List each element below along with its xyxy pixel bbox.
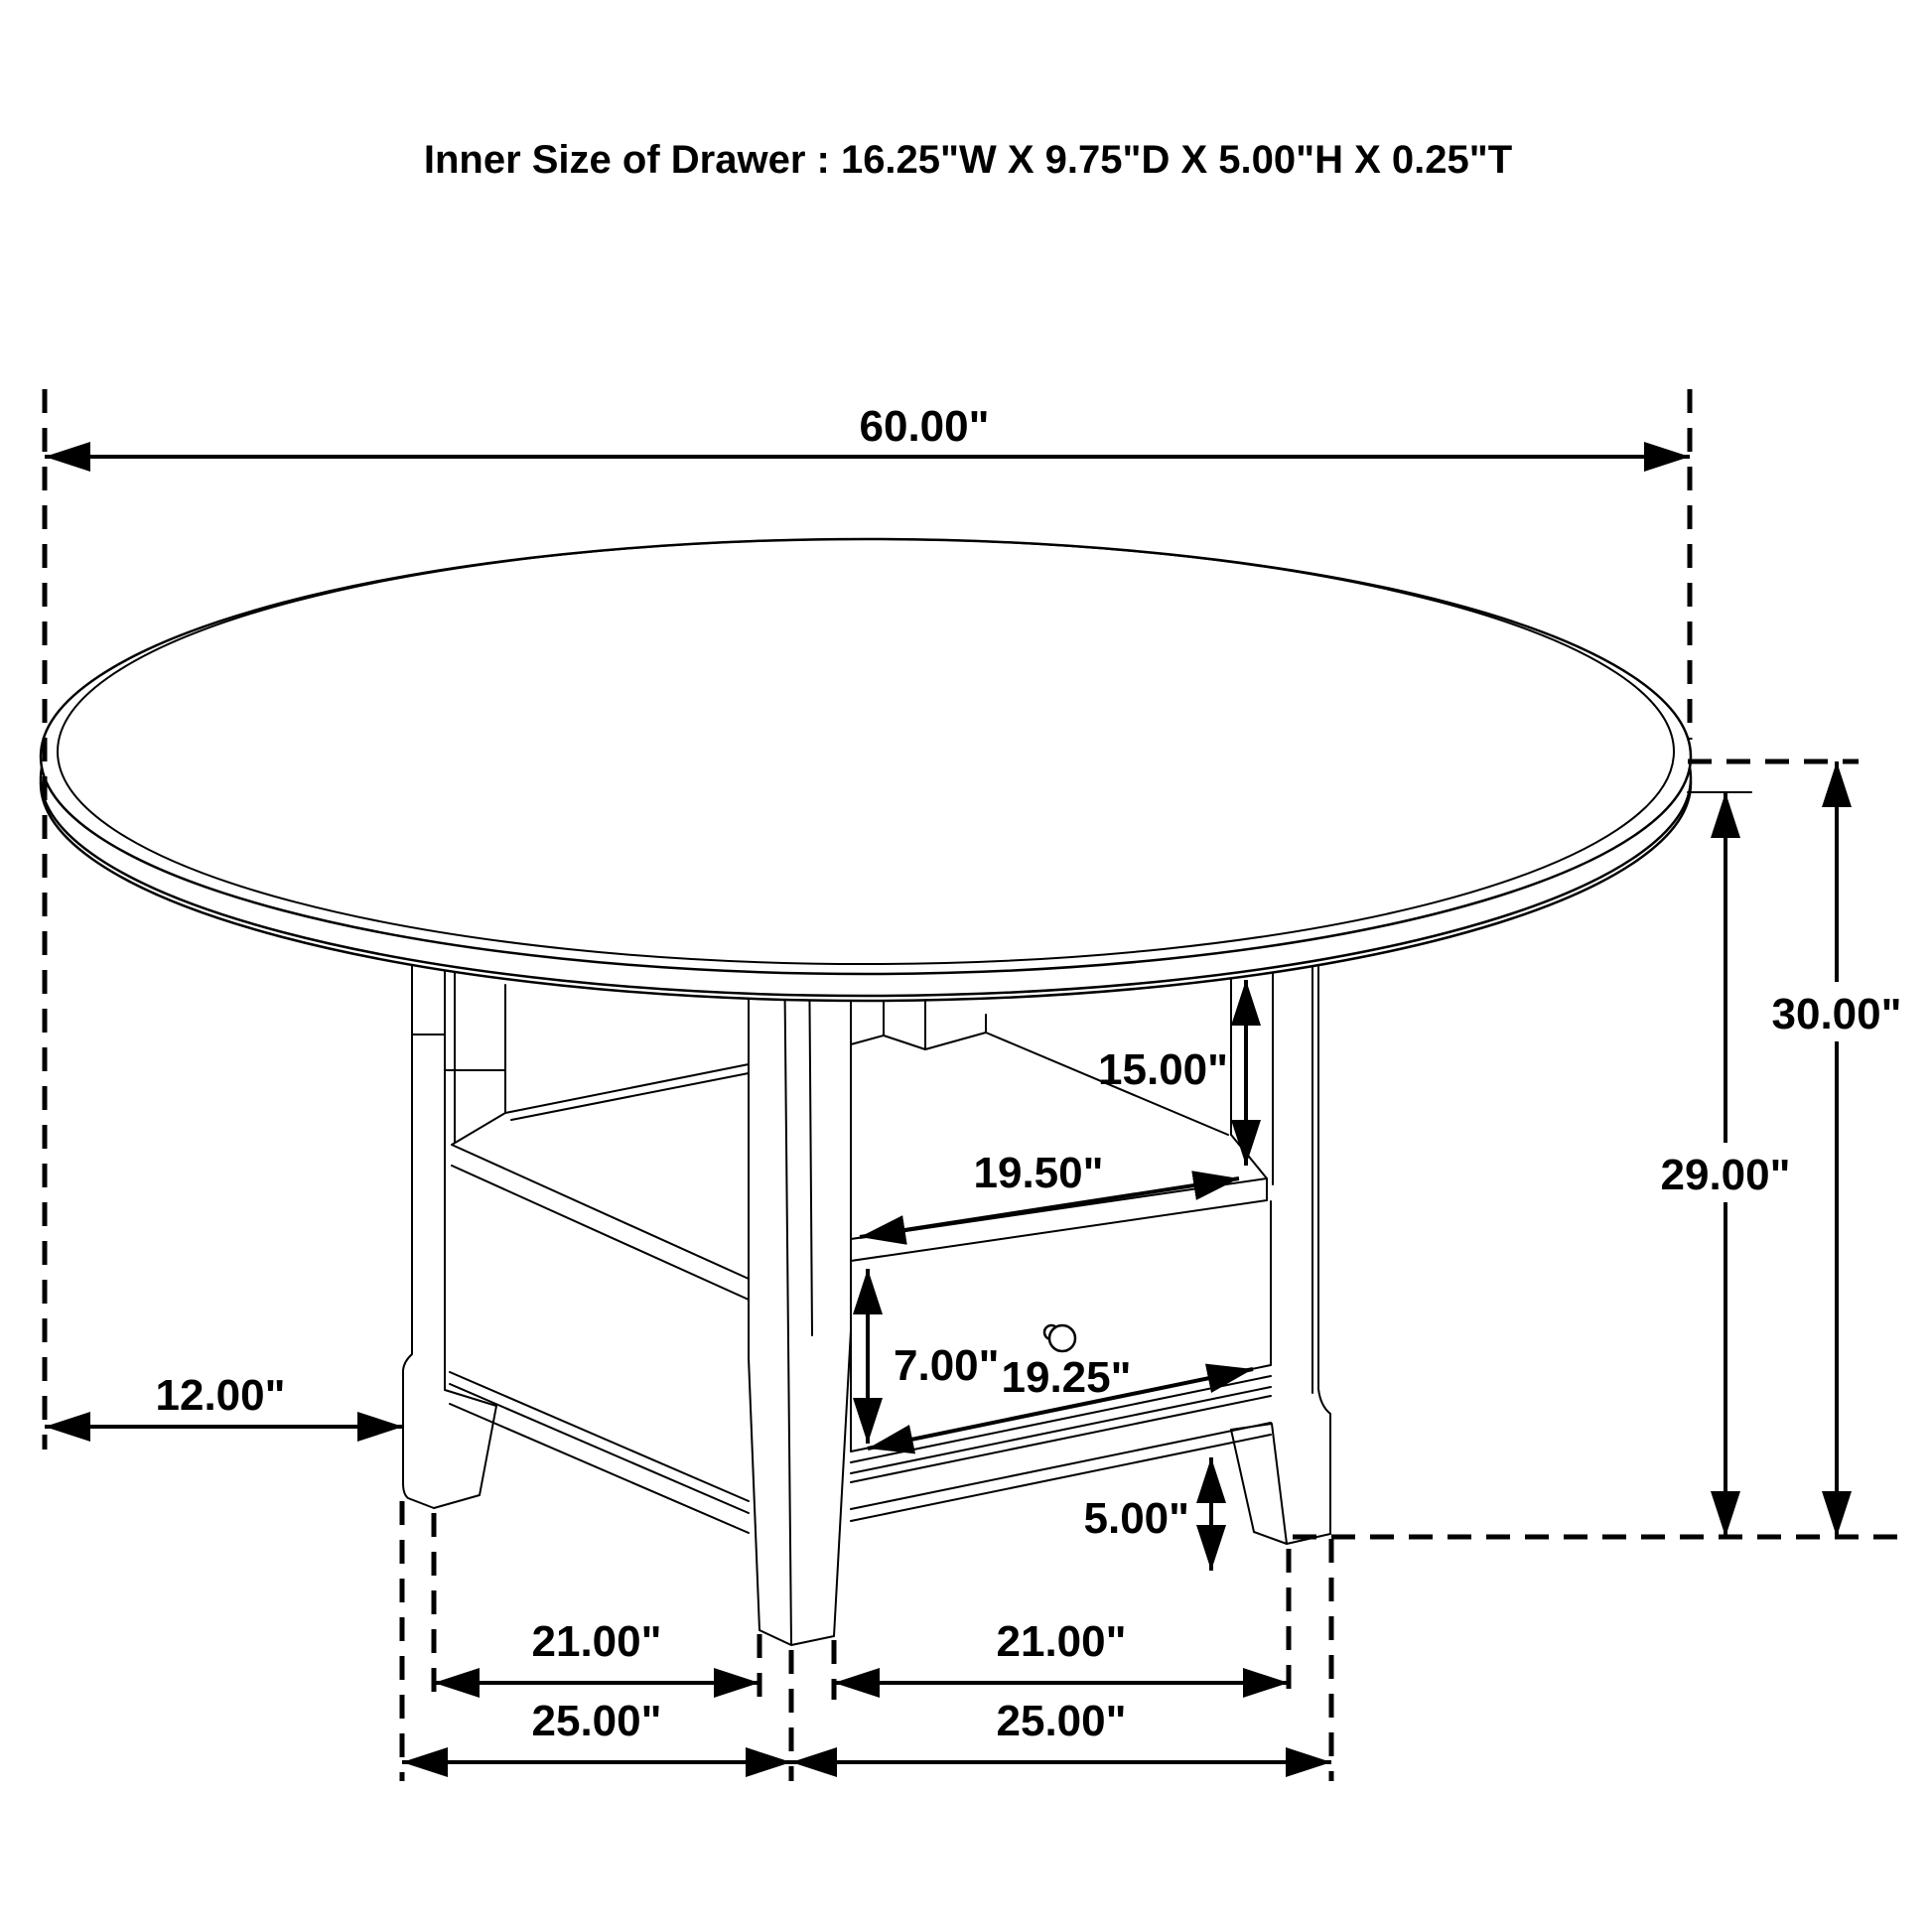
dim-label-drawer-width: 19.25": [1002, 1353, 1132, 1402]
left-open-shelf: [412, 985, 749, 1533]
dim-leg-inner-spans: 21.00" 21.00": [434, 1617, 1289, 1683]
table-top: [41, 539, 1691, 1001]
dim-label-underside-height: 29.00": [1661, 1151, 1791, 1199]
dim-label-outer-left: 25.00": [532, 1697, 662, 1745]
left-leg-outline: [403, 938, 455, 1508]
left-rear-foot: [434, 1390, 496, 1508]
dim-label-drawer-height: 7.00": [894, 1341, 1000, 1390]
top-outline: [41, 539, 1691, 974]
diagram-page: 60.00" 30.00" 29.00" 15.00" 19.50" 7.00"…: [0, 0, 1932, 1932]
table-dimension-diagram: 60.00" 30.00" 29.00" 15.00" 19.50" 7.00"…: [0, 0, 1932, 1932]
dim-label-shelf-width: 19.50": [974, 1149, 1104, 1197]
dim-label-top-overhang: 12.00": [156, 1371, 286, 1420]
page-title: Inner Size of Drawer : 16.25"W X 9.75"D …: [424, 138, 1512, 182]
left-shelf-board: [452, 1064, 749, 1300]
left-bottom-rail: [450, 1372, 749, 1533]
left-compartment-interior: [412, 985, 505, 1113]
dim-label-total-height: 30.00": [1772, 990, 1902, 1038]
dim-shelf-width: 19.50": [860, 1149, 1239, 1237]
center-leg-body: [749, 938, 851, 1645]
dim-label-inner-left: 21.00": [532, 1617, 662, 1666]
dim-drawer-height: 7.00": [868, 1269, 1000, 1444]
dim-label-floor-clearance: 5.00": [1084, 1494, 1190, 1543]
dim-label-outer-right: 25.00": [997, 1697, 1127, 1745]
dim-label-table-diameter: 60.00": [860, 402, 990, 451]
dim-leg-outer-spans: 25.00" 25.00": [402, 1697, 1331, 1762]
dim-compartment-opening: 15.00": [1098, 980, 1246, 1166]
dim-top-overhang: 12.00": [45, 1371, 403, 1427]
center-leg: [749, 938, 851, 1645]
dim-label-inner-right: 21.00": [997, 1617, 1127, 1666]
dim-label-compartment-opening: 15.00": [1098, 1045, 1228, 1094]
left-leg: [403, 938, 496, 1508]
knob-face: [1049, 1325, 1075, 1351]
dim-floor-clearance: 5.00": [1084, 1457, 1212, 1571]
drawer-knob: [1044, 1325, 1075, 1351]
right-front-foot: [1231, 1424, 1330, 1544]
right-leg-post: [1312, 938, 1330, 1534]
